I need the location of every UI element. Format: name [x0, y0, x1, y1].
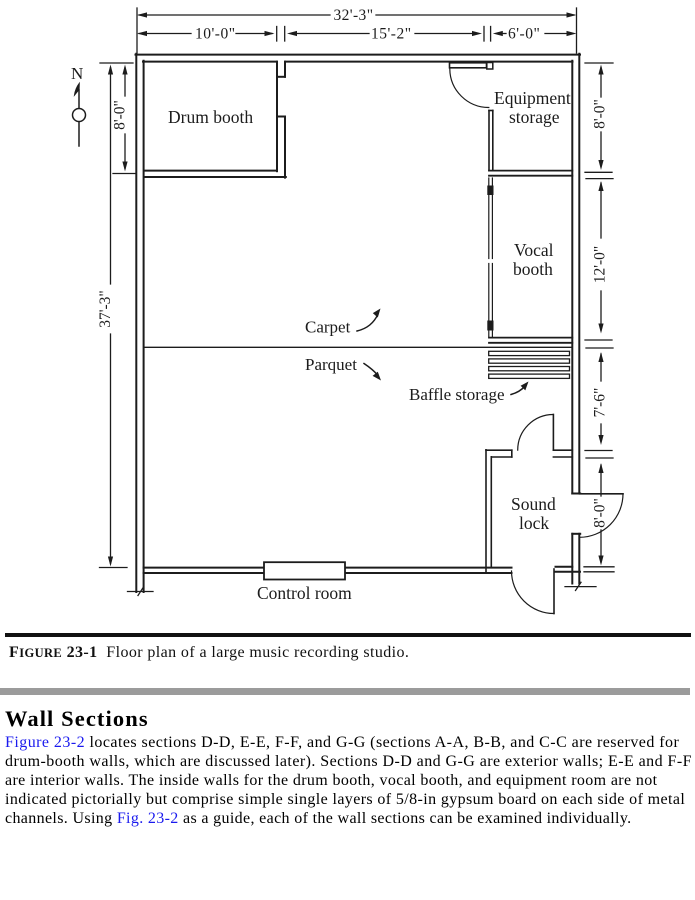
svg-text:lock: lock [519, 513, 549, 533]
svg-text:Equipment: Equipment [494, 88, 571, 108]
svg-text:Sound: Sound [511, 494, 556, 514]
svg-text:Control room: Control room [257, 583, 352, 603]
svg-text:Parquet: Parquet [305, 355, 357, 374]
svg-text:Carpet: Carpet [305, 318, 351, 337]
svg-text:10'-0": 10'-0" [195, 26, 236, 43]
svg-text:Vocal: Vocal [514, 240, 554, 260]
svg-text:32'-3": 32'-3" [334, 7, 374, 24]
svg-text:15'-2": 15'-2" [371, 26, 412, 43]
svg-text:8'-0": 8'-0" [592, 99, 609, 129]
svg-text:8'-0": 8'-0" [592, 498, 609, 528]
svg-text:6'-0": 6'-0" [508, 26, 540, 43]
svg-text:Baffle storage: Baffle storage [409, 385, 505, 404]
svg-text:N: N [71, 64, 83, 83]
svg-text:7'-6": 7'-6" [592, 388, 609, 418]
svg-text:37'-3": 37'-3" [97, 290, 114, 328]
svg-text:Drum booth: Drum booth [168, 107, 253, 127]
svg-text:storage: storage [509, 107, 560, 127]
svg-text:booth: booth [513, 259, 553, 279]
svg-text:12'-0": 12'-0" [592, 246, 609, 284]
svg-text:8'-0": 8'-0" [112, 100, 129, 130]
